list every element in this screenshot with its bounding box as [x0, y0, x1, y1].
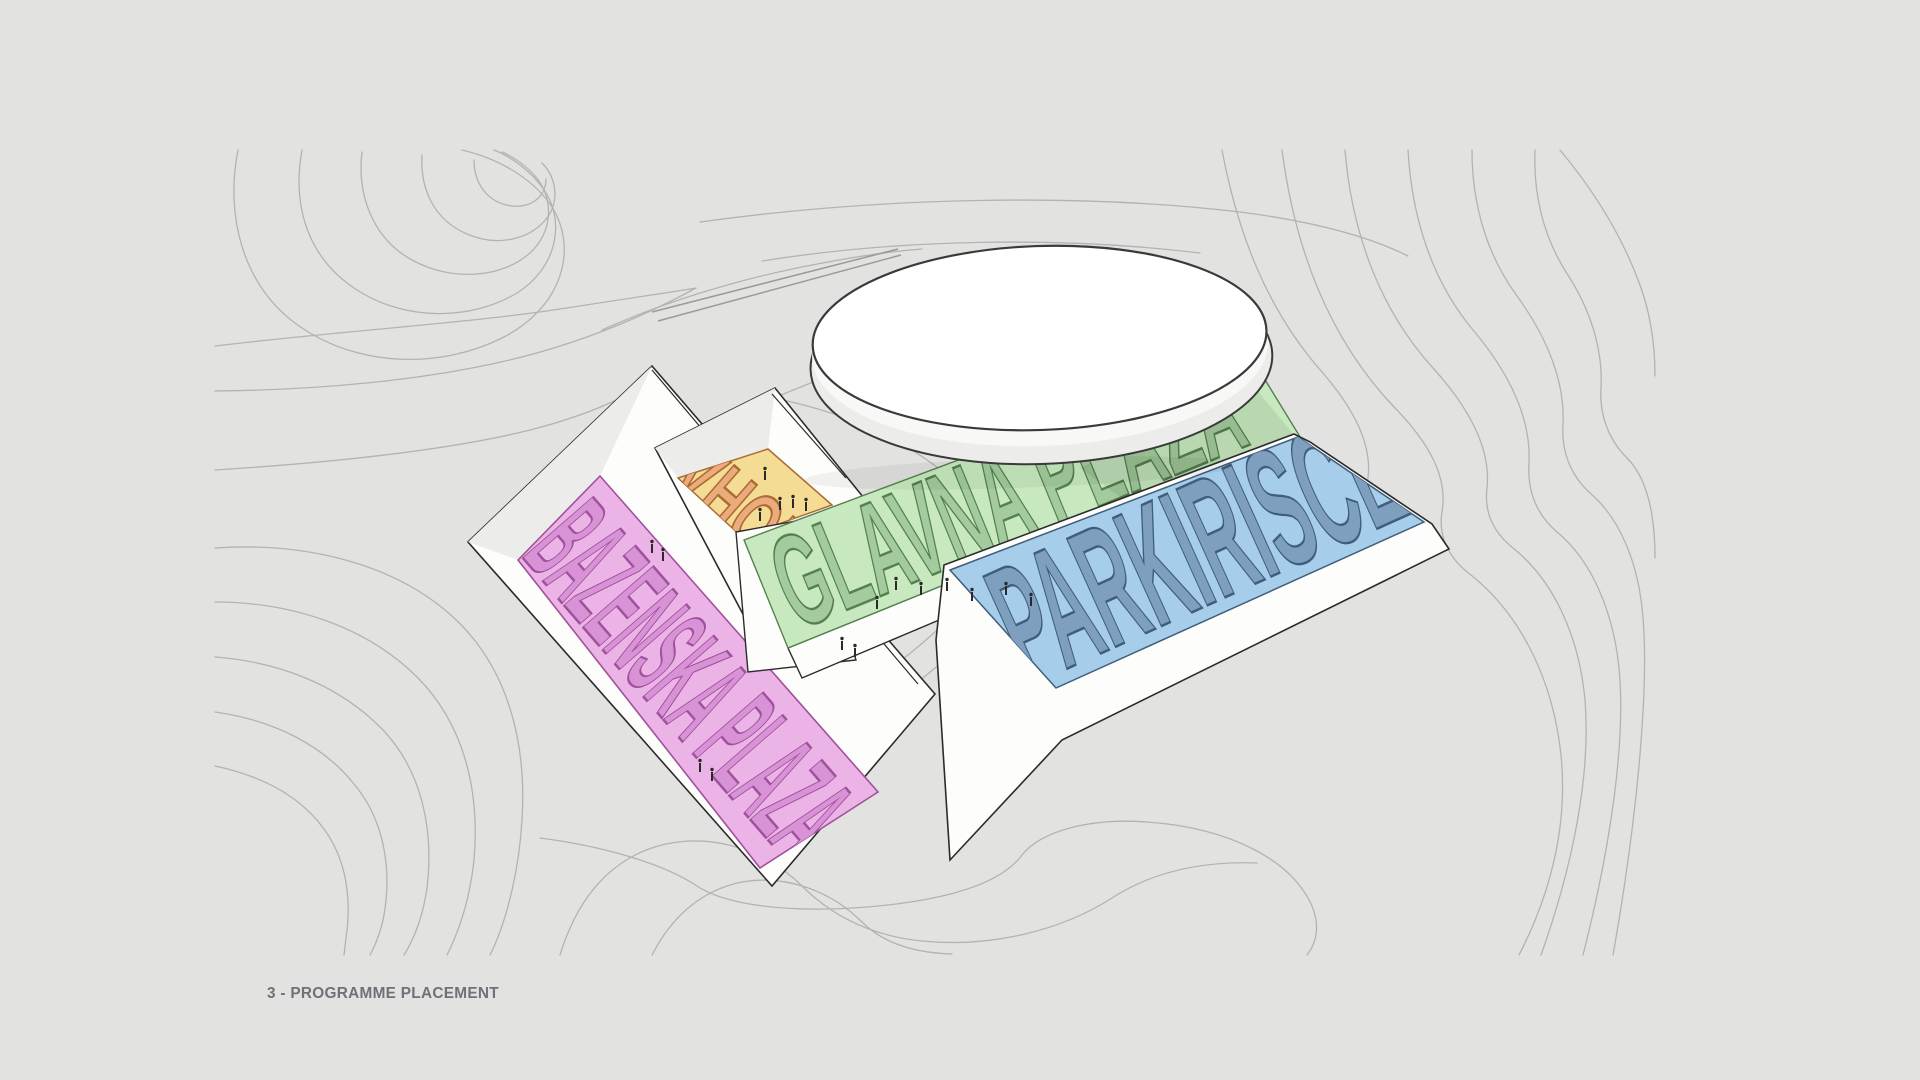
site-axonometric-drawing: BAZENSKA PLAZA VHOD GLAVNA PLAZA: [0, 0, 1920, 1080]
programme-placement-diagram: BAZENSKA PLAZA VHOD GLAVNA PLAZA: [0, 0, 1920, 1080]
figure-caption: 3 - PROGRAMME PLACEMENT: [267, 985, 499, 1003]
